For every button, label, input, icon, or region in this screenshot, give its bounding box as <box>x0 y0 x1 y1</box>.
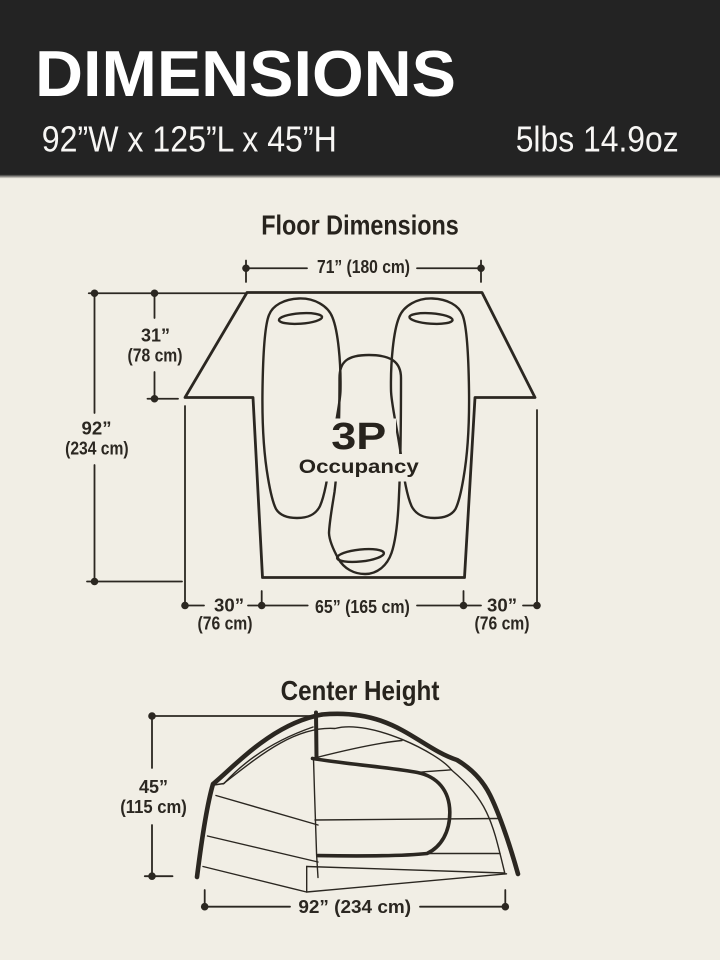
svg-text:Floor Dimensions: Floor Dimensions <box>261 210 459 241</box>
svg-text:DIMENSIONS: DIMENSIONS <box>35 37 456 110</box>
svg-text:71” (180 cm): 71” (180 cm) <box>317 256 410 277</box>
svg-text:Center Height: Center Height <box>281 675 440 706</box>
svg-text:(76 cm): (76 cm) <box>475 613 530 634</box>
svg-text:92” (234 cm): 92” (234 cm) <box>298 896 411 917</box>
svg-text:45”: 45” <box>139 776 168 797</box>
svg-text:92”W x 125”L x 45”H: 92”W x 125”L x 45”H <box>42 119 337 160</box>
svg-text:92”: 92” <box>82 418 112 439</box>
svg-text:(78 cm): (78 cm) <box>128 345 183 366</box>
svg-text:5lbs 14.9oz: 5lbs 14.9oz <box>516 119 679 160</box>
svg-text:65” (165 cm): 65” (165 cm) <box>315 596 410 617</box>
svg-text:(76 cm): (76 cm) <box>198 613 253 634</box>
svg-text:Occupancy: Occupancy <box>299 456 419 478</box>
svg-text:(234 cm): (234 cm) <box>65 438 129 459</box>
svg-text:3P: 3P <box>331 415 386 457</box>
svg-text:(115 cm): (115 cm) <box>120 796 187 817</box>
svg-text:31”: 31” <box>141 325 170 346</box>
